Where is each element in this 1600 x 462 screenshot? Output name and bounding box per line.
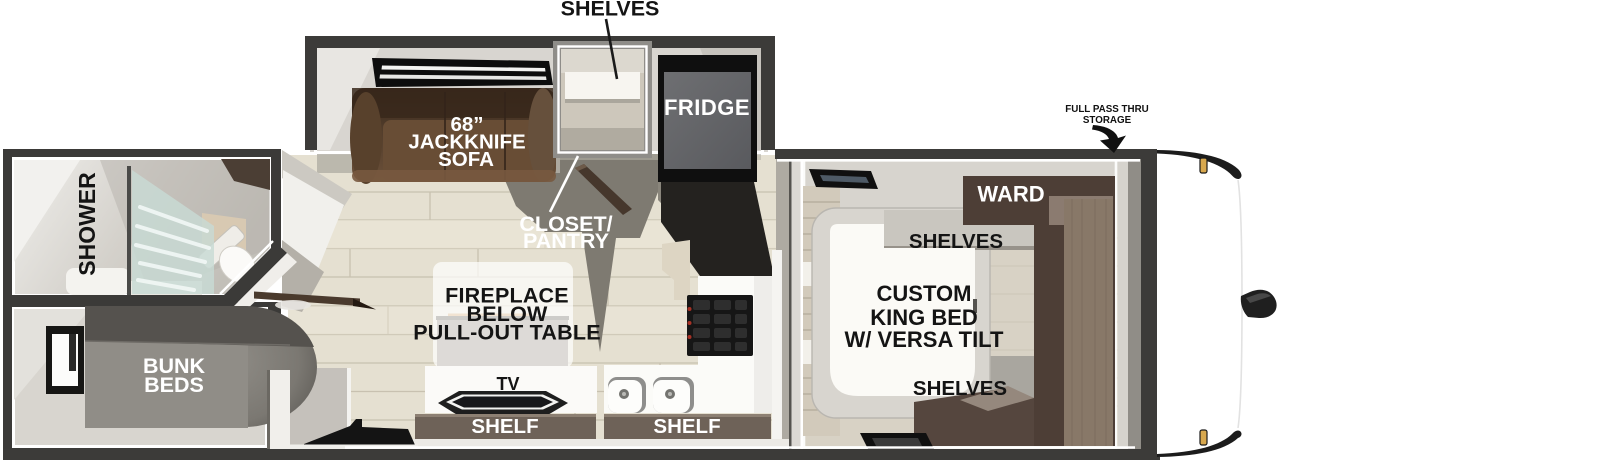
svg-text:SHELVES: SHELVES	[909, 230, 1003, 253]
svg-text:SHELF: SHELF	[653, 415, 720, 438]
svg-text:PULL-OUT TABLE: PULL-OUT TABLE	[413, 321, 601, 345]
svg-text:W/ VERSA TILT: W/ VERSA TILT	[845, 327, 1004, 352]
svg-text:BEDS: BEDS	[144, 373, 204, 397]
svg-text:PANTRY: PANTRY	[523, 229, 609, 253]
svg-text:TV: TV	[496, 374, 519, 394]
svg-text:SOFA: SOFA	[438, 148, 494, 171]
svg-text:STORAGE: STORAGE	[1083, 115, 1132, 126]
svg-text:SHELF: SHELF	[471, 415, 538, 438]
svg-text:FRIDGE: FRIDGE	[664, 95, 750, 120]
svg-text:FULL PASS THRU: FULL PASS THRU	[1065, 104, 1148, 115]
svg-text:SHELVES: SHELVES	[561, 0, 660, 21]
svg-text:SHELVES: SHELVES	[913, 377, 1007, 400]
svg-text:CUSTOM: CUSTOM	[877, 281, 972, 306]
svg-text:WARD: WARD	[977, 182, 1044, 207]
svg-text:SHOWER: SHOWER	[74, 172, 100, 276]
